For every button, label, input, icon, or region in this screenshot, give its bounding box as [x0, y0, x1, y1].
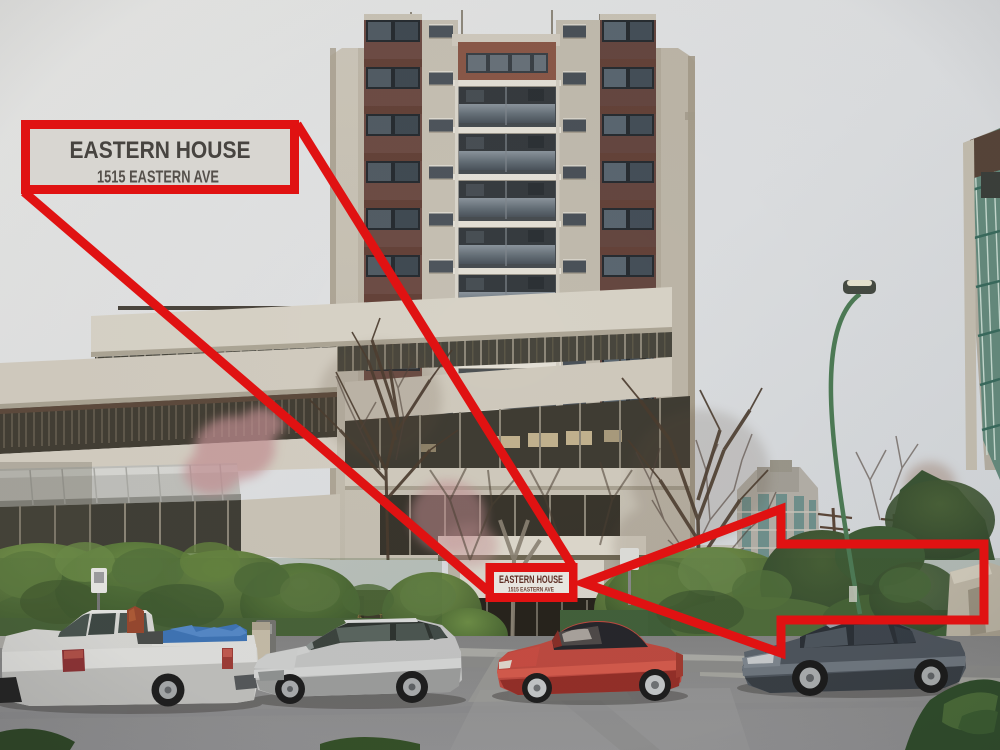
svg-text:EASTERN HOUSE: EASTERN HOUSE	[499, 574, 563, 586]
svg-text:1515 EASTERN AVE: 1515 EASTERN AVE	[97, 167, 219, 187]
svg-text:1515 EASTERN AVE: 1515 EASTERN AVE	[508, 588, 554, 594]
svg-text:EASTERN HOUSE: EASTERN HOUSE	[70, 137, 251, 164]
